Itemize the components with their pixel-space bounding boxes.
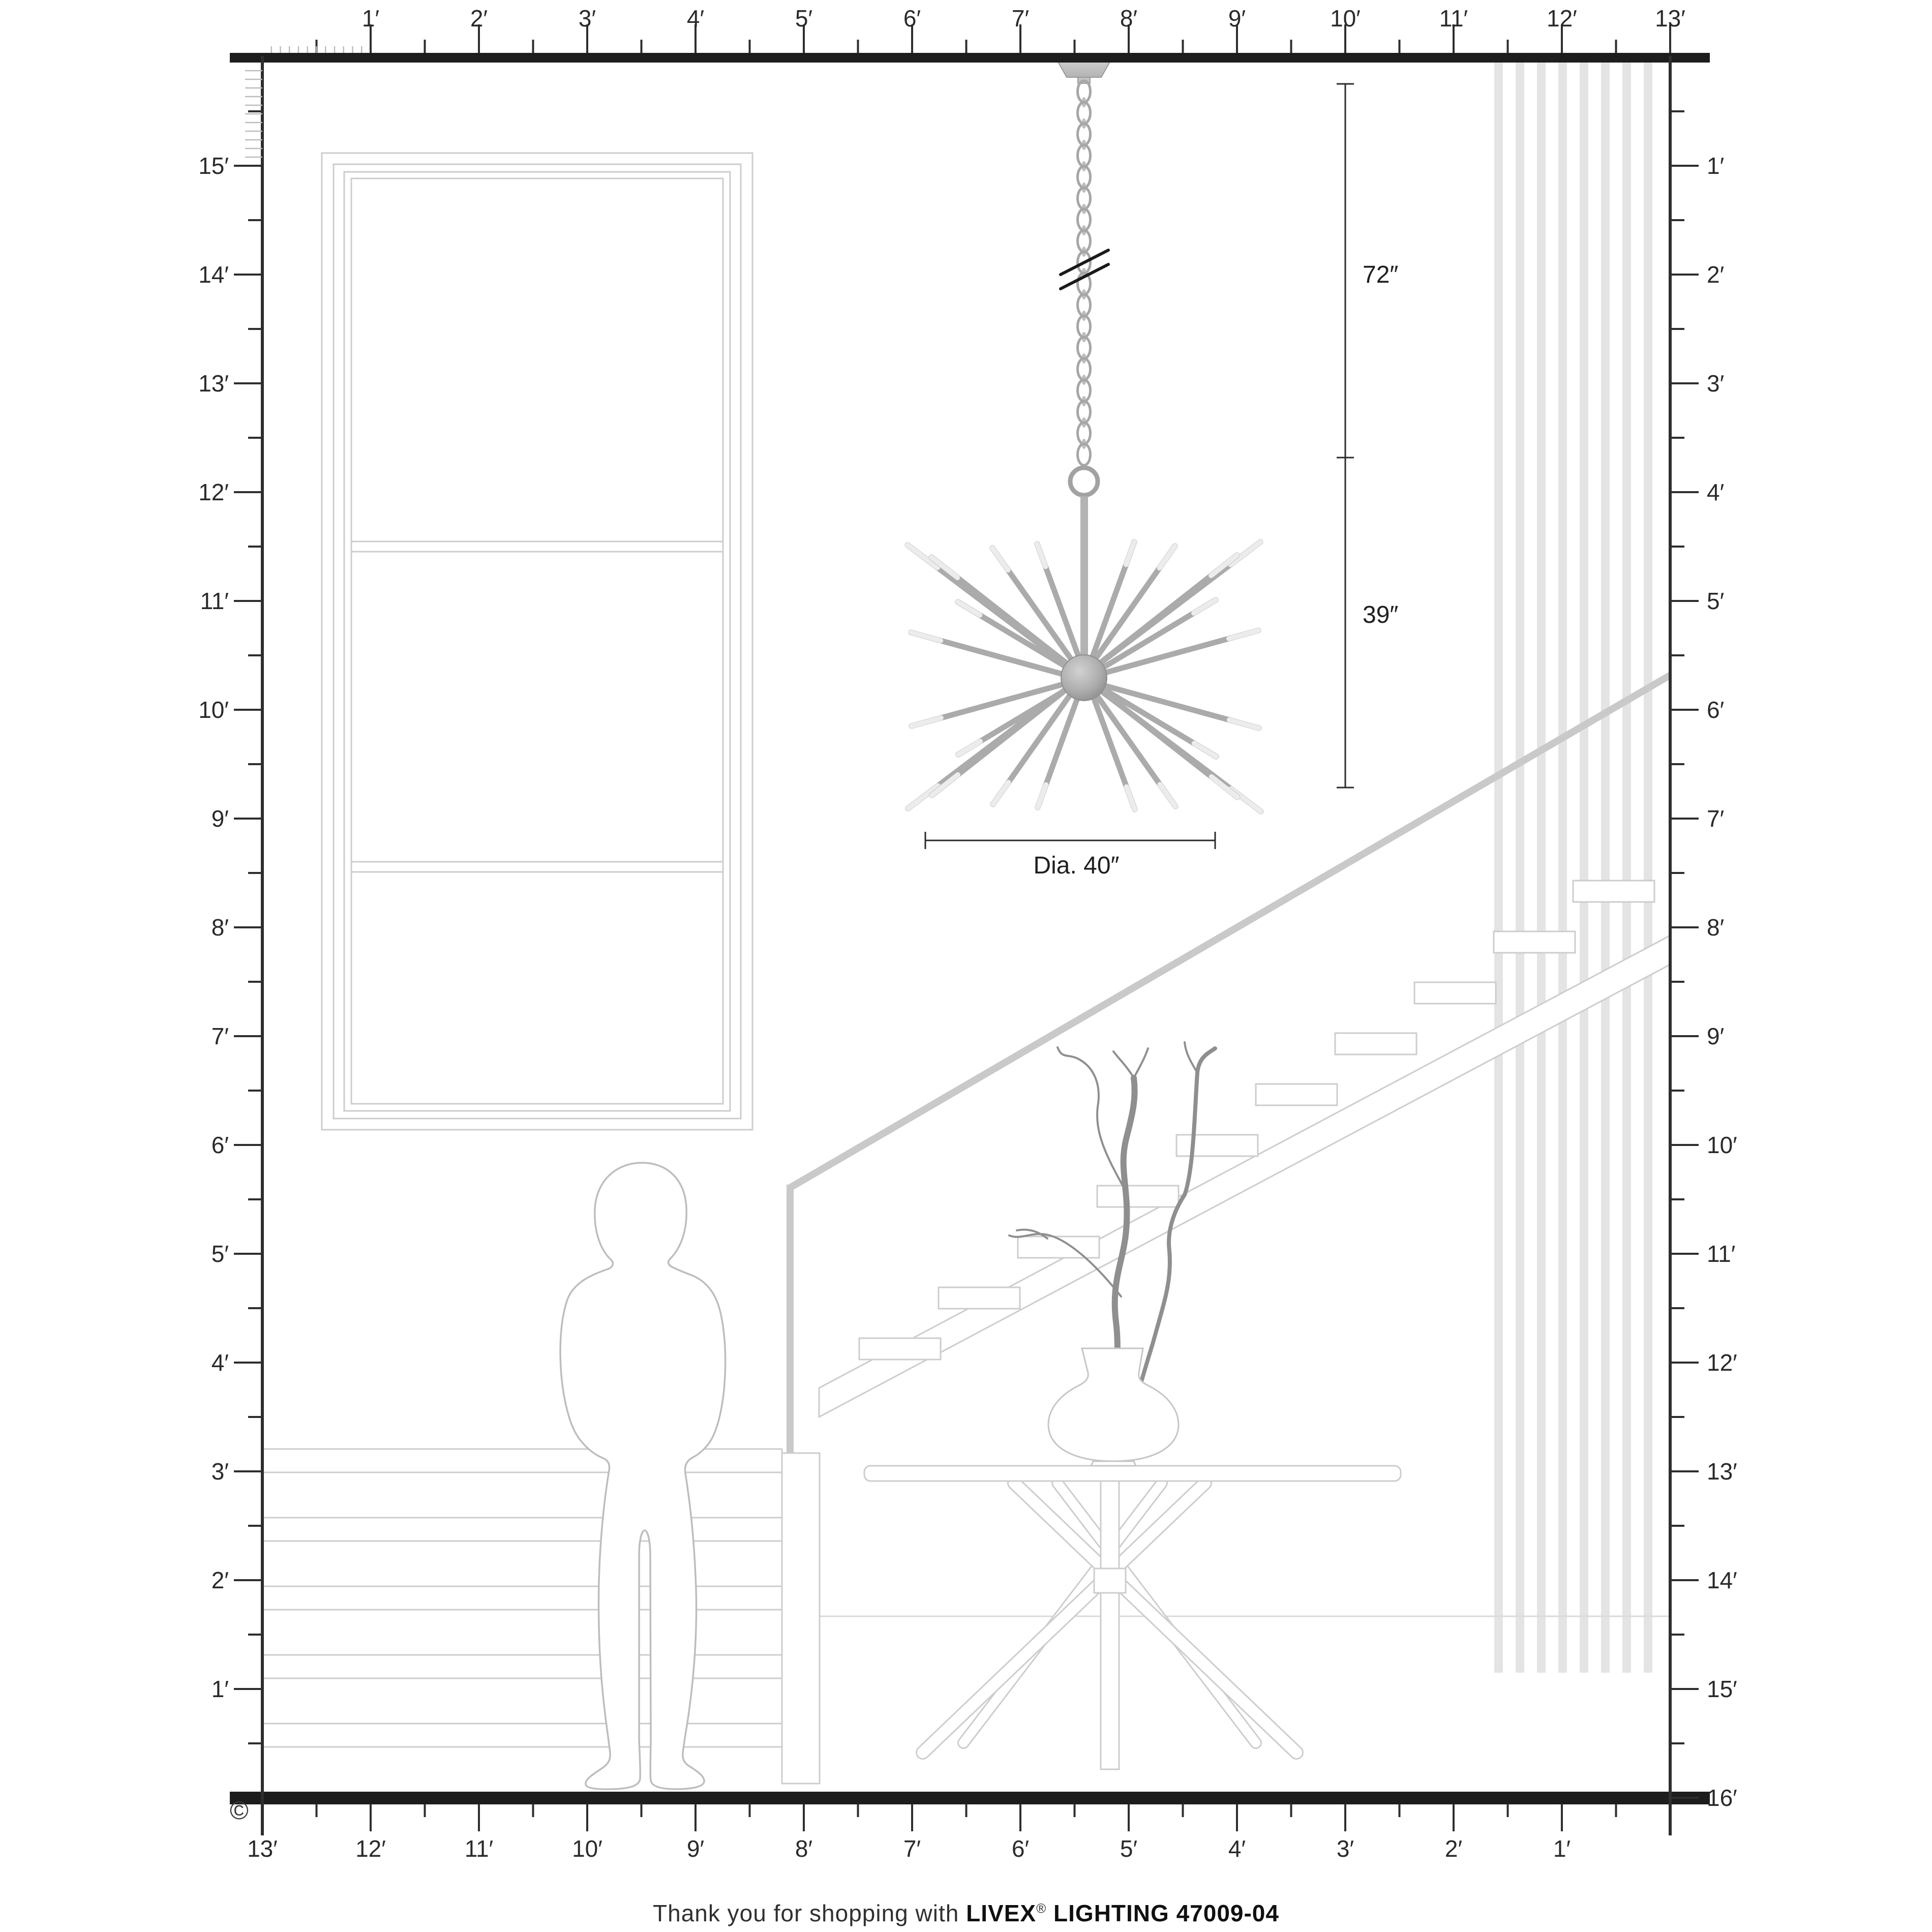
bulb-tip — [1160, 784, 1175, 806]
bulb-tip — [958, 602, 980, 615]
bulb-tip — [992, 548, 1008, 570]
ruler-label: 7′ — [1012, 5, 1029, 32]
ruler-label: 11′ — [200, 588, 229, 614]
chandelier — [908, 61, 1261, 811]
chandelier-ring — [1070, 468, 1098, 495]
person-silhouette — [560, 1163, 726, 1789]
ruler-label: 1′ — [1707, 153, 1724, 179]
chandelier-stem — [1080, 496, 1088, 678]
registered-mark: ® — [1036, 1901, 1046, 1916]
ruler-label: 3′ — [579, 5, 596, 32]
window-outer-frame — [322, 153, 752, 1130]
bulb-tip — [1194, 743, 1216, 757]
ruler-label: 8′ — [1120, 5, 1137, 32]
window-mullions — [351, 541, 723, 872]
ruler-label: 4′ — [1707, 479, 1724, 505]
ruler-label: 2′ — [1445, 1835, 1462, 1862]
bulb-tip — [1212, 777, 1237, 797]
ruler-label: 15′ — [1707, 1676, 1737, 1702]
ruler-label: 11′ — [465, 1835, 493, 1862]
ruler-label: 10′ — [198, 697, 229, 723]
ruler-label: 9′ — [1228, 5, 1246, 32]
stair-treads — [859, 881, 1654, 1360]
ruler-label: 4′ — [212, 1349, 229, 1376]
diameter-label: Dia. 40″ — [1033, 852, 1119, 879]
table-leg-collar — [1094, 1568, 1126, 1593]
ceiling-bar — [230, 53, 1710, 63]
ruler-label: 12′ — [355, 1835, 386, 1862]
ruler-label: 11′ — [1439, 5, 1468, 32]
stair-newel-post — [782, 1453, 820, 1784]
ruler-label: 12′ — [1707, 1349, 1737, 1376]
ruler-label: 7′ — [1707, 805, 1724, 832]
ruler-label: 10′ — [1707, 1132, 1737, 1158]
ruler-label: 6′ — [1707, 697, 1724, 723]
ruler-label: 4′ — [687, 5, 704, 32]
footer-thanks-text: Thank you for shopping with — [653, 1900, 966, 1926]
ruler-label: 16′ — [1707, 1785, 1737, 1811]
chandelier-hub — [1061, 655, 1107, 701]
brand-name: LIVEX — [966, 1900, 1036, 1926]
ruler-label: 11′ — [1707, 1241, 1735, 1267]
ruler-label: 1′ — [362, 5, 379, 32]
ruler-label: 14′ — [198, 261, 229, 288]
ruler-label: 12′ — [198, 479, 229, 505]
staircase — [782, 675, 1670, 1784]
bulb-tip — [993, 782, 1008, 804]
ruler-label: 8′ — [1707, 914, 1724, 941]
ruler-label: 3′ — [1707, 370, 1724, 397]
ruler-label: 15′ — [198, 153, 229, 179]
ruler-label: 14′ — [1707, 1567, 1737, 1593]
table-top — [864, 1466, 1401, 1481]
ruler-label: 13′ — [1707, 1458, 1737, 1485]
scale-diagram-canvas: 72″ 39″ Dia. 40″ 1′2′3′4′5′6′7′8′9′10′11… — [0, 0, 1932, 1932]
dining-table — [864, 1466, 1401, 1769]
ruler-label: 13′ — [247, 1835, 278, 1862]
ruler-label: 10′ — [572, 1835, 602, 1862]
ruler-label: 1′ — [212, 1676, 229, 1702]
ruler-label: 6′ — [1012, 1835, 1029, 1862]
product-number: LIGHTING 47009-04 — [1046, 1900, 1279, 1926]
ruler-label: 3′ — [1337, 1835, 1354, 1862]
bulb-tip — [1160, 546, 1175, 568]
ruler-label: 13′ — [1655, 5, 1685, 32]
ruler-label: 8′ — [212, 914, 229, 941]
footer-note: Thank you for shopping with LIVEX® LIGHT… — [0, 1899, 1932, 1927]
ruler-label: 7′ — [903, 1835, 921, 1862]
ruler-label: 13′ — [198, 370, 229, 397]
chandelier-canopy — [1058, 61, 1110, 77]
floor-bar — [230, 1792, 1710, 1804]
ruler-label: 5′ — [1707, 588, 1724, 614]
ruler-label: 5′ — [795, 5, 812, 32]
vase — [1048, 1348, 1179, 1461]
ruler-label: 5′ — [212, 1241, 229, 1267]
window-sash-frame — [351, 178, 723, 1104]
ruler-label: 8′ — [795, 1835, 812, 1862]
ruler-label: 7′ — [212, 1023, 229, 1049]
ruler-label: 2′ — [212, 1567, 229, 1593]
window-frame-3 — [344, 172, 730, 1111]
ruler-label: 1′ — [1553, 1835, 1571, 1862]
ruler-label: 9′ — [212, 805, 229, 832]
ruler-ticks — [234, 24, 1699, 1831]
table-pedestal-post — [1101, 1480, 1119, 1769]
ruler-label: 5′ — [1120, 1835, 1137, 1862]
window — [322, 153, 752, 1130]
vase-foot — [1091, 1461, 1136, 1466]
drop-dimension-label: 72″ — [1363, 261, 1398, 288]
railing-boards — [262, 1449, 782, 1747]
ruler-label: 9′ — [687, 1835, 704, 1862]
ruler-label: 2′ — [470, 5, 488, 32]
window-frame-2 — [334, 164, 741, 1119]
ruler-label: 3′ — [212, 1458, 229, 1485]
copyright-icon: © — [230, 1796, 249, 1825]
fixture-height-label: 39″ — [1363, 601, 1398, 628]
ruler-label: 6′ — [903, 5, 921, 32]
ruler-label: 10′ — [1330, 5, 1361, 32]
ruler-label: 9′ — [1707, 1023, 1724, 1049]
ruler-label: 2′ — [1707, 261, 1724, 288]
vertical-blinds — [1494, 62, 1652, 1673]
room-scale-diagram: 72″ 39″ Dia. 40″ 1′2′3′4′5′6′7′8′9′10′11… — [0, 0, 1932, 1932]
bulb-tip — [958, 741, 980, 754]
bulb-tip — [1194, 600, 1216, 613]
ruler-label: 4′ — [1228, 1835, 1246, 1862]
ruler-label: 12′ — [1547, 5, 1577, 32]
ruler-label: 6′ — [212, 1132, 229, 1158]
